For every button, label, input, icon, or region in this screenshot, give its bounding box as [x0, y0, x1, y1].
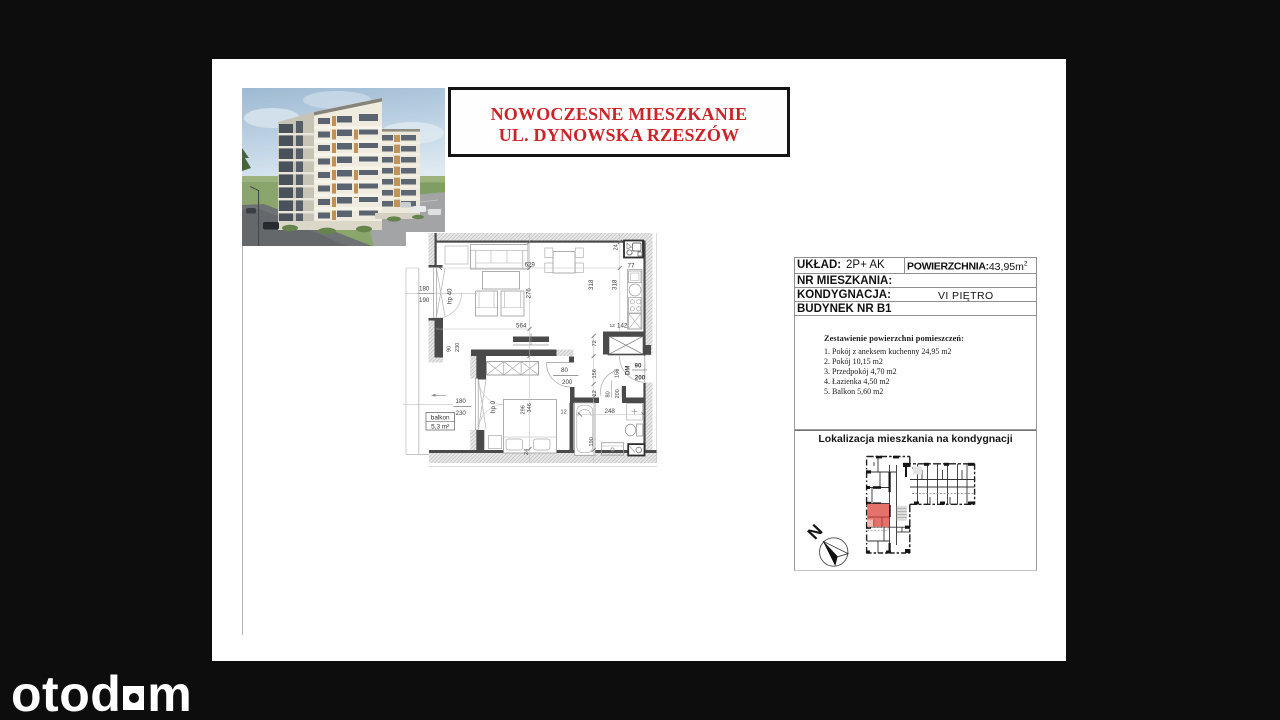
svg-text:190: 190 [589, 437, 595, 446]
svg-text:142: 142 [617, 322, 628, 329]
svg-text:156: 156 [592, 369, 598, 378]
svg-text:200: 200 [635, 374, 646, 381]
svg-text:318: 318 [612, 279, 619, 290]
svg-text:276: 276 [526, 288, 533, 299]
svg-text:12: 12 [561, 410, 567, 416]
svg-text:346: 346 [527, 403, 533, 412]
svg-text:318: 318 [588, 279, 595, 290]
svg-text:72: 72 [592, 340, 598, 346]
svg-text:5,3 m²: 5,3 m² [431, 423, 449, 430]
svg-text:564: 564 [516, 322, 527, 329]
svg-text:N: N [803, 520, 826, 543]
svg-text:230: 230 [455, 343, 461, 352]
svg-text:balkon: balkon [431, 415, 450, 422]
svg-text:190: 190 [419, 297, 430, 304]
svg-text:248: 248 [605, 408, 616, 415]
svg-text:230: 230 [456, 410, 467, 417]
svg-text:hp 40: hp 40 [447, 288, 454, 304]
svg-text:156: 156 [614, 369, 620, 378]
svg-text:hp 0: hp 0 [490, 400, 497, 413]
svg-text:80: 80 [561, 367, 568, 374]
svg-text:12: 12 [592, 390, 598, 396]
svg-text:DM: DM [626, 366, 632, 375]
svg-text:90: 90 [447, 346, 453, 352]
svg-text:629: 629 [525, 261, 536, 268]
svg-text:180: 180 [419, 286, 430, 293]
svg-text:200: 200 [562, 379, 573, 386]
svg-text:12: 12 [610, 323, 616, 329]
svg-text:180: 180 [456, 398, 467, 405]
svg-text:24: 24 [614, 244, 620, 250]
svg-text:80: 80 [606, 391, 612, 397]
svg-text:296: 296 [521, 405, 527, 414]
svg-text:200: 200 [615, 389, 621, 398]
svg-text:77: 77 [628, 262, 635, 269]
svg-text:24: 24 [524, 449, 530, 455]
svg-text:90: 90 [635, 362, 642, 369]
